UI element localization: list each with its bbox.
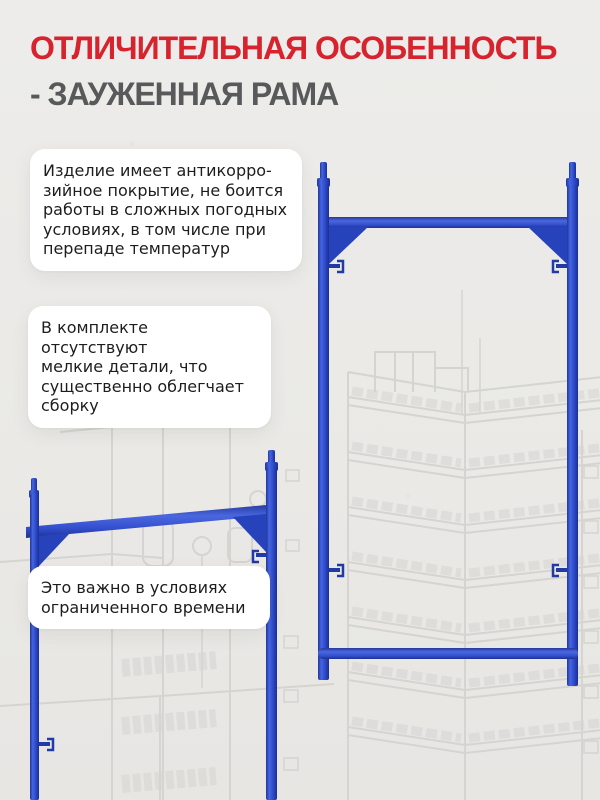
feature-card-time-saving: Это важно в условиях ограниченного време… — [28, 566, 270, 629]
scaffold-frame-main-image — [317, 162, 579, 686]
bottom-crossbar — [318, 648, 578, 659]
post-left — [30, 494, 39, 800]
gusset-left — [39, 533, 70, 566]
feature-card-no-small-parts: В комплекте отсутствуют мелкие детали, ч… — [28, 306, 271, 428]
page-title: ОТЛИЧИТЕЛЬНАЯ ОСОБЕННОСТЬ — [30, 30, 556, 67]
gusset-right — [233, 514, 266, 552]
gusset-right — [528, 227, 567, 264]
top-crossbar — [318, 217, 578, 228]
post-right — [567, 185, 578, 686]
post-right — [266, 467, 277, 800]
product-infographic: ОТЛИЧИТЕЛЬНАЯ ОСОБЕННОСТЬ - ЗАУЖЕННАЯ РА… — [0, 0, 600, 800]
feature-text: Это важно в условиях ограниченного време… — [41, 578, 257, 617]
feature-text: Изделие имеет антикорро- зийное покрытие… — [43, 161, 289, 259]
feature-text: В комплекте отсутствуют мелкие детали, ч… — [41, 318, 258, 416]
feature-card-coating: Изделие имеет антикорро- зийное покрытие… — [30, 149, 302, 271]
post-left — [318, 185, 329, 680]
gusset-left — [329, 227, 368, 264]
ladder-hooks — [329, 261, 567, 576]
page-subtitle: - ЗАУЖЕННАЯ РАМА — [30, 76, 338, 113]
